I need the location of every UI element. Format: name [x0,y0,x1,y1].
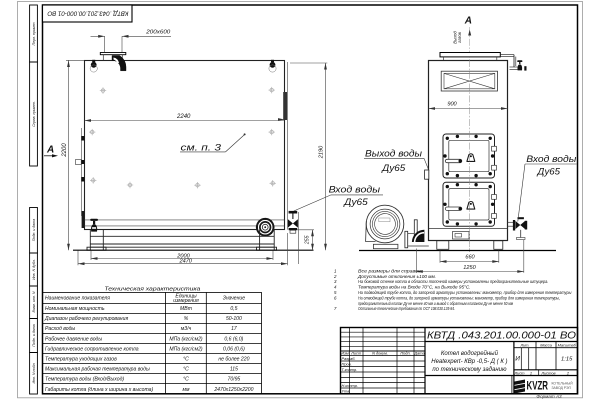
svg-text:°С: °С [183,357,189,363]
svg-text:2200: 2200 [62,143,68,158]
svg-text:Разраб.: Разраб. [342,356,356,361]
svg-text:Т.контр.: Т.контр. [342,367,358,372]
svg-text:Выход воды: Выход воды [365,149,422,159]
svg-text:Масштаб: Масштаб [558,342,577,347]
svg-text:1:15: 1:15 [561,357,573,363]
svg-text:ЗАВОД РЭП: ЗАВОД РЭП [552,386,572,390]
svg-text:по техническому заданию: по техническому заданию [432,367,507,373]
svg-text:0,6 (6,0): 0,6 (6,0) [224,336,243,342]
svg-text:Листов: Листов [540,370,555,375]
svg-text:200х600: 200х600 [145,30,171,36]
svg-text:%: % [184,316,189,322]
svg-text:Ду65: Ду65 [537,167,561,177]
svg-text:Габариты котла (длина х ширина: Габариты котла (длина х ширина х высота) [45,387,153,393]
svg-text:2240: 2240 [176,114,191,120]
svg-text:На отводящей трубе котла, до з: На отводящей трубе котла, до запорной ар… [358,295,560,300]
svg-text:Остальные технические требован: Остальные технические требования по ОСТ … [358,306,455,311]
svg-text:Н.контр.: Н.контр. [342,383,358,388]
svg-text:Инв. N подл.: Инв. N подл. [32,362,36,383]
svg-text:А: А [46,145,54,156]
svg-text:N докум.: N докум. [372,350,388,355]
svg-text:Котел водогрейный: Котел водогрейный [441,350,499,357]
svg-text:1250: 1250 [463,265,476,271]
svg-text:17: 17 [231,326,237,332]
svg-text:На подводящей трубе котла, до: На подводящей трубе котла, до запорной а… [358,290,572,295]
svg-text:Температура воды на Входе 70°: Температура воды на Входе 70°С, на Выход… [358,285,471,290]
svg-text:Гидравлическое сопротивление к: Гидравлическое сопротивление котла [45,346,139,352]
svg-text:660: 660 [465,255,475,261]
svg-text:КВТД .043.201.00.000-01 ВО: КВТД .043.201.00.000-01 ВО [47,9,128,16]
svg-text:1: 1 [530,370,532,375]
svg-text:Допустимые отклонения ±100 мм.: Допустимые отклонения ±100 мм. [357,274,436,279]
svg-text:МПа (кгс/см2): МПа (кгс/см2) [169,346,203,352]
svg-text:°С: °С [183,377,189,383]
svg-text:Взам. инв. N: Взам. инв. N [32,291,36,312]
svg-text:Рабочее давление воды: Рабочее давление воды [45,336,102,342]
svg-text:мм: мм [183,387,190,393]
svg-text:А: А [464,16,472,27]
svg-text:измерения: измерения [173,298,199,304]
svg-text:Лист: Лист [350,350,362,355]
svg-text:Подп.: Подп. [400,350,410,355]
svg-text:Диапазон рабочего регулировани: Диапазон рабочего регулирования [44,316,128,322]
svg-text:70/95: 70/95 [228,377,241,383]
svg-text:Утв.: Утв. [342,388,351,393]
svg-text:Перв. примен.: Перв. примен. [32,22,36,46]
svg-text:Максимальная рабочая температу: Максимальная рабочая температура воды [45,367,150,373]
svg-text:Температура уходящих газов: Температура уходящих газов [45,357,117,363]
svg-text:2190: 2190 [318,145,324,159]
svg-text:МПа (кгс/см2): МПа (кгс/см2) [169,336,203,342]
svg-text:255: 255 [305,235,311,245]
svg-text:900: 900 [447,102,457,108]
svg-text:Изм: Изм [341,350,349,355]
svg-text:2: 2 [333,274,337,279]
svg-text:50-100: 50-100 [226,316,242,322]
svg-text:Ду65: Ду65 [381,163,406,173]
svg-text:2470х1250х2200: 2470х1250х2200 [213,387,253,393]
svg-text:Расход воды: Расход воды [45,326,75,332]
svg-text:КВТД .043.201.00.000-01 ВО: КВТД .043.201.00.000-01 ВО [427,331,576,342]
svg-text:Heatexpert- КВр -0,5- Д ( К ): Heatexpert- КВр -0,5- Д ( К ) [431,359,507,365]
svg-text:Масса: Масса [540,342,552,347]
svg-text:Подп. и дата: Подп. и дата [32,219,36,242]
svg-text:МВт: МВт [180,306,192,312]
svg-text:Ду65: Ду65 [343,197,368,207]
svg-text:Техническая характеристика: Техническая характеристика [104,287,201,293]
svg-text:см. п. 3: см. п. 3 [181,142,222,152]
svg-text:Формат А3: Формат А3 [536,394,562,399]
svg-text:Номинальная мощность: Номинальная мощность [45,306,105,312]
svg-text:Пров.: Пров. [342,361,352,366]
svg-text:°С: °С [183,367,189,373]
svg-text:Инв. N дубл.: Инв. N дубл. [32,259,36,280]
svg-text:газов: газов [457,31,462,42]
svg-text:м3/ч: м3/ч [181,326,192,332]
svg-text:KVZR: KVZR [527,381,549,393]
svg-text:0,06 (0,6): 0,06 (0,6) [223,346,245,352]
svg-text:Все размеры для справок: Все размеры для справок [358,268,422,273]
svg-text:Температура воды (Вход/Выход): Температура воды (Вход/Выход) [45,377,124,383]
svg-text:КОТЕЛЬНЫЙ: КОТЕЛЬНЫЙ [552,382,574,386]
svg-text:Подп. и дата: Подп. и дата [32,324,36,347]
svg-text:Дата: Дата [413,350,425,355]
svg-text:На боковой стенке котла в обла: На боковой стенке котла в области топочн… [358,279,549,284]
svg-text:Вход воды: Вход воды [329,184,381,194]
svg-text:Справ. примен.: Справ. примен. [32,101,36,127]
svg-text:2470: 2470 [178,259,192,265]
svg-text:Лит.: Лит. [519,342,529,347]
svg-text:предохранительный клапан Ду н: предохранительный клапан Ду не менее 40 … [358,301,513,306]
svg-text:Значение: Значение [223,296,246,302]
svg-text:Лист: Лист [513,370,525,375]
svg-text:И: И [515,356,520,363]
svg-text:Наименование показателя: Наименование показателя [45,296,110,302]
svg-text:115: 115 [230,367,238,373]
svg-text:не более 220: не более 220 [218,357,249,363]
svg-text:Вход воды: Вход воды [526,154,576,164]
svg-text:0,5: 0,5 [230,306,237,312]
